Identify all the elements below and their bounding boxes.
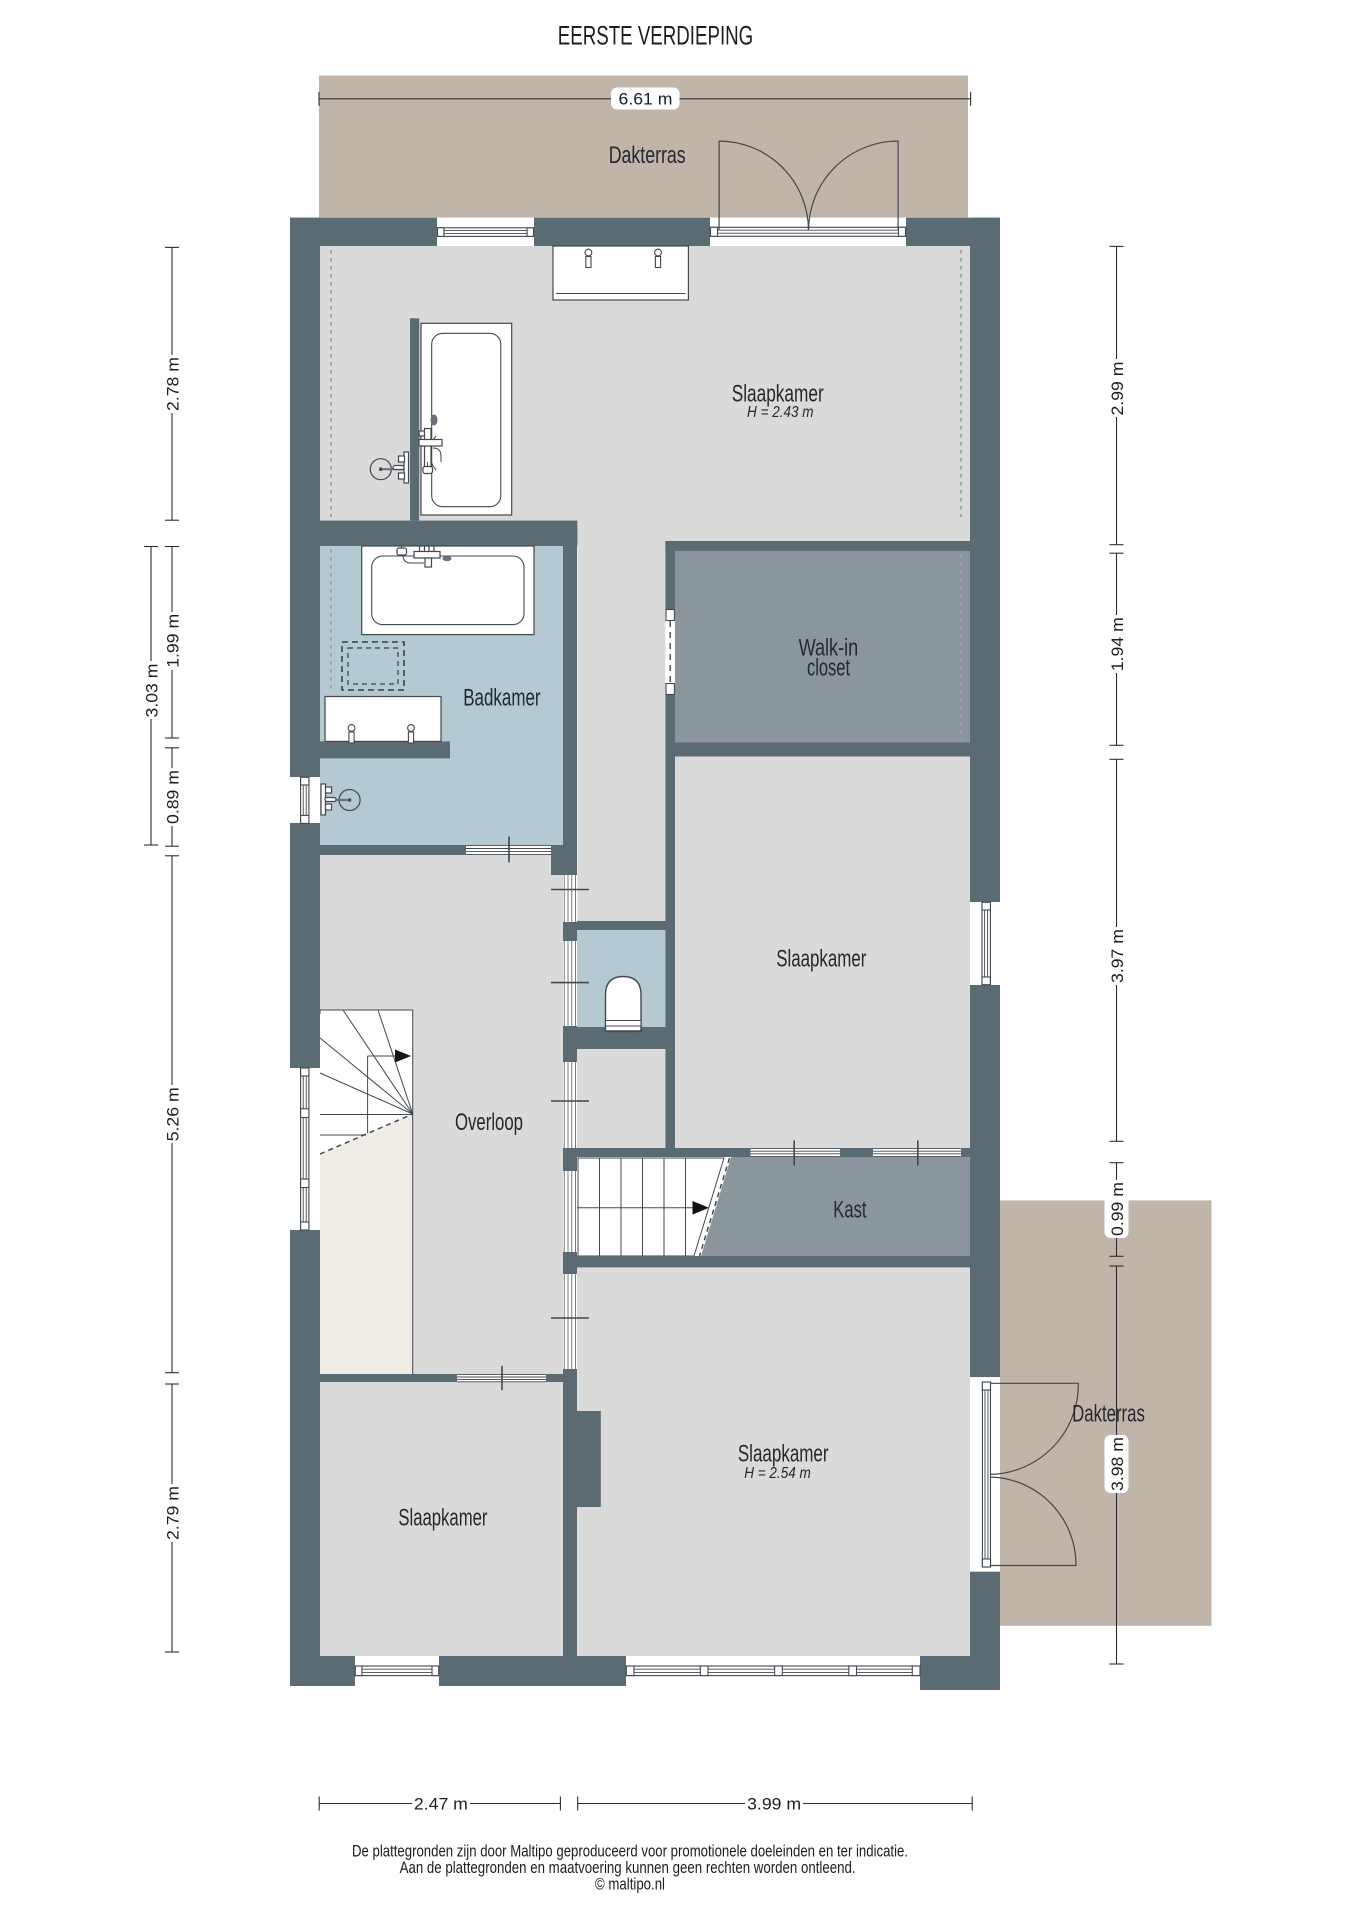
svg-text:EERSTE VERDIEPING: EERSTE VERDIEPING <box>558 21 754 51</box>
svg-text:© maltipo.nl: © maltipo.nl <box>595 1876 665 1894</box>
svg-text:H = 2.54 m: H = 2.54 m <box>744 1465 811 1482</box>
svg-text:Dakterras: Dakterras <box>1072 1401 1145 1428</box>
svg-text:2.47 m: 2.47 m <box>414 1794 468 1813</box>
svg-text:3.03 m: 3.03 m <box>143 664 162 718</box>
svg-text:2.99 m: 2.99 m <box>1108 362 1127 416</box>
svg-text:3.98 m: 3.98 m <box>1108 1437 1127 1491</box>
svg-text:0.99 m: 0.99 m <box>1108 1182 1127 1236</box>
svg-text:closet: closet <box>807 654 850 681</box>
svg-text:De plattegronden zijn door Mal: De plattegronden zijn door Maltipo gepro… <box>352 1843 908 1861</box>
svg-text:Kast: Kast <box>833 1197 866 1224</box>
svg-text:Aan de plattegronden en maatvo: Aan de plattegronden en maatvoering kunn… <box>400 1859 856 1877</box>
svg-text:H = 2.43 m: H = 2.43 m <box>747 404 814 421</box>
svg-text:Dakterras: Dakterras <box>609 142 686 169</box>
svg-text:3.97 m: 3.97 m <box>1108 929 1127 983</box>
svg-text:Slaapkamer: Slaapkamer <box>398 1505 487 1532</box>
svg-text:2.79 m: 2.79 m <box>164 1486 183 1540</box>
svg-text:1.99 m: 1.99 m <box>164 614 183 668</box>
svg-text:Overloop: Overloop <box>455 1109 523 1136</box>
svg-text:5.26 m: 5.26 m <box>164 1087 183 1141</box>
svg-text:Badkamer: Badkamer <box>463 684 540 711</box>
svg-text:3.99 m: 3.99 m <box>747 1794 801 1813</box>
svg-text:6.61 m: 6.61 m <box>619 89 673 108</box>
svg-text:Slaapkamer: Slaapkamer <box>776 945 866 972</box>
svg-text:1.94 m: 1.94 m <box>1108 617 1127 671</box>
svg-text:2.78 m: 2.78 m <box>164 357 183 411</box>
svg-text:Slaapkamer: Slaapkamer <box>738 1441 829 1468</box>
svg-text:0.89 m: 0.89 m <box>164 770 183 824</box>
